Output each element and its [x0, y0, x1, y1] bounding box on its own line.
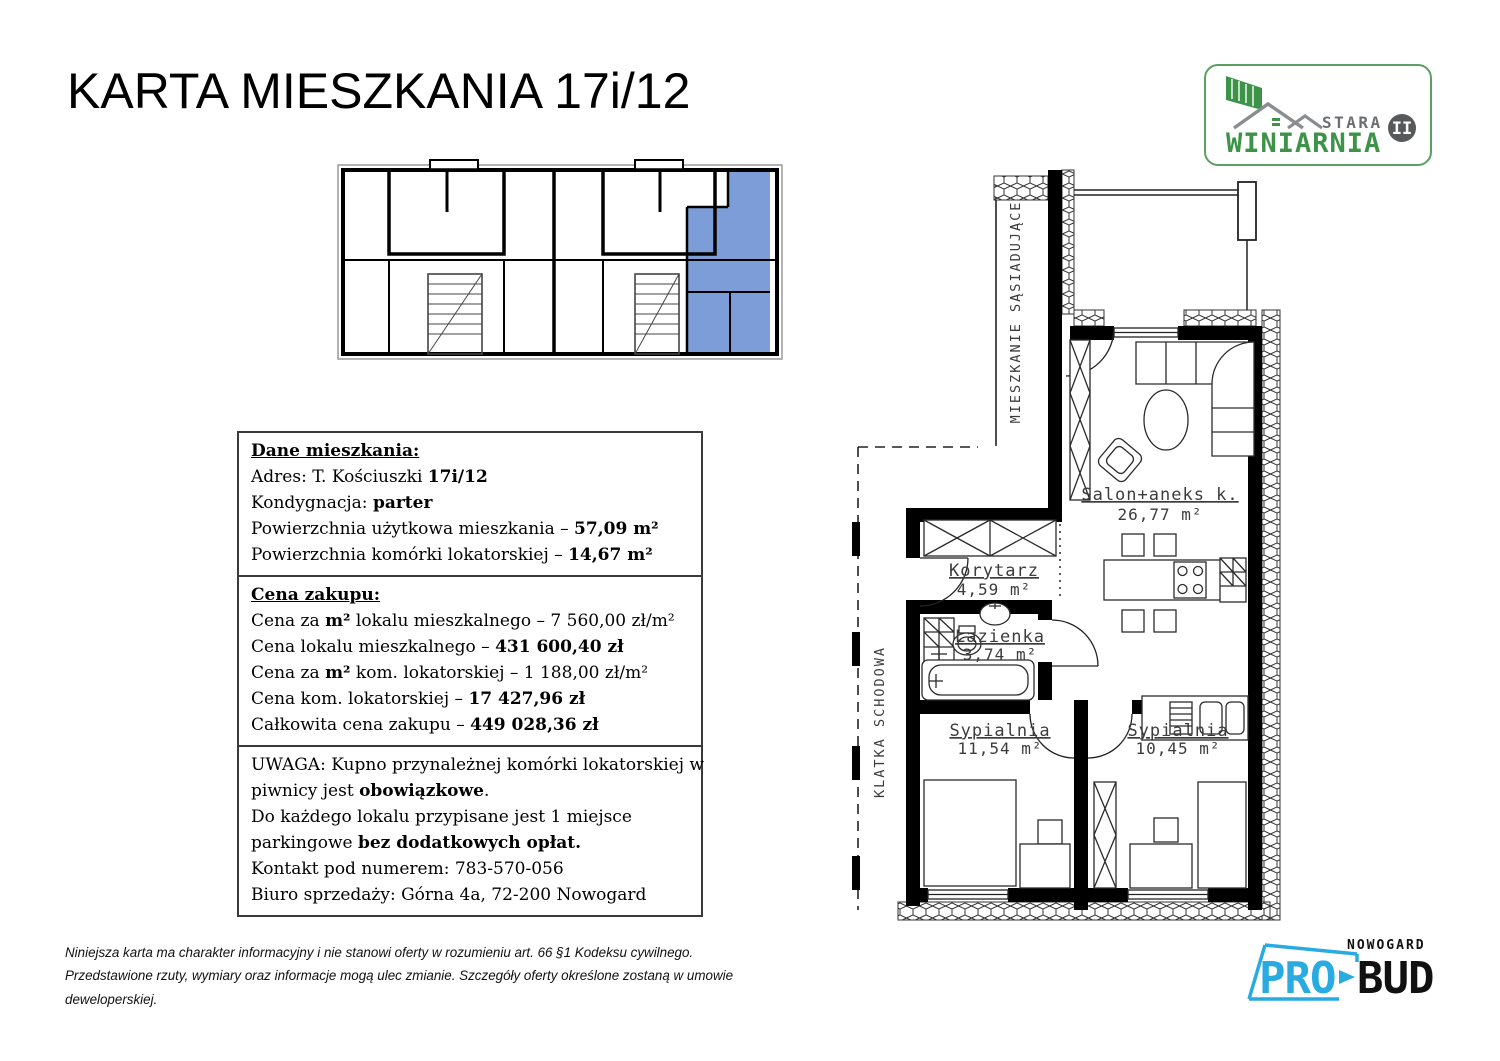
box-line: Cena za m² lokalu mieszkalnego – 7 560,0… [251, 608, 689, 634]
kitchen-chair [1154, 534, 1176, 556]
box-line: Adres: T. Kościuszki 17i/12 [251, 464, 689, 490]
text-segment: Adres: T. Kościuszki [251, 467, 428, 487]
kitchen-counter [1104, 560, 1228, 600]
house-icon [1226, 76, 1322, 128]
text-segment: 17i/12 [428, 467, 488, 487]
box-line: Do każdego lokalu przypisane jest 1 miej… [251, 804, 689, 830]
winiarnia-text: WINIARNIA [1226, 128, 1381, 159]
room-area: 26,77 m² [1117, 505, 1202, 524]
box-line: piwnicy jest obowiązkowe. [251, 778, 689, 804]
stara-winiarnia-logo-graphic: STARA WINIARNIA II [1206, 66, 1430, 164]
bed [1198, 782, 1246, 888]
staircase-symbol [428, 274, 482, 354]
text-segment: Powierzchnia komórki lokatorskiej – [251, 545, 568, 565]
box-line: Cena zakupu: [251, 582, 689, 608]
text-segment: piwnicy jest [251, 781, 359, 801]
armchair [1096, 436, 1144, 484]
room-area: 11,54 m² [957, 739, 1042, 758]
box-line: parkingowe bez dodatkowych opłat. [251, 830, 689, 856]
box-line: Całkowita cena zakupu – 449 028,36 zł [251, 712, 689, 738]
text-segment: . [484, 781, 489, 801]
insulation-hatch [1062, 170, 1074, 314]
text-segment: 17 427,96 zł [468, 689, 585, 709]
text-segment: Całkowita cena zakupu – [251, 715, 470, 735]
box-line: UWAGA: Kupno przynależnej komórki lokato… [251, 752, 689, 778]
text-segment: kom. lokatorskiej – 1 188,00 zł/m² [351, 663, 649, 683]
apartment-floor-plan: Salon+aneks k. 26,77 m² Korytarz 4,59 m²… [848, 162, 1288, 947]
box-line: Cena lokalu mieszkalnego – 431 600,40 zł [251, 634, 689, 660]
box-line: Dane mieszkania: [251, 438, 689, 464]
probud-logo: PRO NOWOGARD BUD [1235, 933, 1440, 1022]
bud-text: BUD [1357, 953, 1433, 1004]
fridge [1220, 558, 1246, 602]
text-segment: parkingowe [251, 833, 358, 853]
kitchen-chair [1122, 610, 1144, 632]
box-line: Biuro sprzedaży: Górna 4a, 72-200 Nowoga… [251, 882, 689, 908]
room-name: Sypialnia [949, 721, 1050, 741]
box-dane-mieszkania: Dane mieszkania:Adres: T. Kościuszki 17i… [237, 431, 703, 577]
info-boxes: Dane mieszkania:Adres: T. Kościuszki 17i… [237, 433, 703, 917]
text-segment: 14,67 m² [568, 545, 653, 565]
room-area: 4,59 m² [957, 580, 1031, 599]
text-segment: Kondygnacja: [251, 493, 373, 513]
box-uwaga: UWAGA: Kupno przynależnej komórki lokato… [237, 745, 703, 917]
room-name: Sypialnia [1127, 721, 1228, 741]
oval-table [1144, 390, 1188, 450]
wardrobe [1094, 782, 1116, 888]
bathroom-sink [980, 603, 1010, 625]
room-area: 10,45 m² [1135, 739, 1220, 758]
staircase-symbol [635, 274, 679, 354]
terrace-pillar [1238, 182, 1256, 240]
wardrobe [1070, 340, 1090, 500]
text-segment: Cena lokalu mieszkalnego – [251, 637, 495, 657]
insulation-hatch [994, 176, 1048, 200]
terrace [1074, 182, 1256, 310]
room-area: 3,74 m² [963, 645, 1037, 664]
bathtub [922, 660, 1034, 700]
text-segment: Dane mieszkania: [251, 441, 419, 461]
salon-furniture [1070, 340, 1254, 740]
text-segment: UWAGA: Kupno przynależnej komórki lokato… [251, 755, 704, 775]
kitchen-chair [1154, 610, 1176, 632]
stara-winiarnia-logo: STARA WINIARNIA II [1204, 64, 1432, 166]
box-line: Kontakt pod numerem: 783-570-056 [251, 856, 689, 882]
text-segment: Cena kom. lokatorskiej – [251, 689, 468, 709]
room-name: Salon+aneks k. [1081, 485, 1238, 505]
text-segment: m² [325, 611, 350, 631]
text-segment: Cena zakupu: [251, 585, 380, 605]
hall-wardrobe [924, 520, 1056, 556]
pro-text: PRO [1259, 953, 1335, 1004]
text-segment: m² [325, 663, 350, 683]
neighbor-apartment-label: MIESZKANIE SĄSIADUJĄCE [1008, 201, 1024, 424]
text-segment: 57,09 m² [574, 519, 659, 539]
text-segment: Kontakt pod numerem: 783-570-056 [251, 859, 564, 879]
washing-machine [924, 618, 954, 662]
text-segment: parter [373, 493, 432, 513]
nowogard-text: NOWOGARD [1347, 938, 1426, 953]
text-segment: Biuro sprzedaży: Górna 4a, 72-200 Nowoga… [251, 885, 646, 905]
text-segment: Cena za [251, 663, 325, 683]
text-segment: obowiązkowe [359, 781, 484, 801]
text-segment: 431 600,40 zł [495, 637, 624, 657]
bed [924, 780, 1016, 886]
room-name: Łazienka [954, 627, 1045, 647]
box-cena-zakupu: Cena zakupu:Cena za m² lokalu mieszkalne… [237, 575, 703, 747]
desk [1130, 844, 1192, 888]
kitchen-chair [1122, 534, 1144, 556]
disclaimer-text: Niniejsza karta ma charakter informacyjn… [65, 941, 773, 1011]
box-line: Kondygnacja: parter [251, 490, 689, 516]
insulation-hatch [1184, 310, 1256, 326]
text-segment: Powierzchnia użytkowa mieszkania – [251, 519, 574, 539]
chair [1038, 820, 1062, 844]
box-line: Powierzchnia komórki lokatorskiej – 14,6… [251, 542, 689, 568]
box-line: Cena za m² kom. lokatorskiej – 1 188,00 … [251, 660, 689, 686]
text-segment: bez dodatkowych opłat. [358, 833, 581, 853]
text-segment: 449 028,36 zł [470, 715, 599, 735]
stove [1174, 562, 1206, 598]
box-line: Cena kom. lokatorskiej – 17 427,96 zł [251, 686, 689, 712]
insulation-hatch [1262, 310, 1280, 920]
room-name: Korytarz [949, 561, 1039, 581]
box-line: Powierzchnia użytkowa mieszkania – 57,09… [251, 516, 689, 542]
text-segment: lokalu mieszkalnego – 7 560,00 zł/m² [351, 611, 675, 631]
numeral-text: II [1392, 119, 1412, 139]
text-segment: Cena za [251, 611, 325, 631]
page-title: KARTA MIESZKANIA 17i/12 [67, 62, 690, 120]
staircase-label: KLATKA SCHODOWA [872, 646, 888, 798]
probud-arrow [1339, 970, 1355, 984]
text-segment: Do każdego lokalu przypisane jest 1 miej… [251, 807, 632, 827]
chair [1154, 818, 1178, 842]
building-overview-plan [335, 152, 785, 372]
insulation-hatch [1074, 310, 1104, 326]
desk [1020, 844, 1070, 888]
apartment-card-page: KARTA MIESZKANIA 17i/12 STARA WINIARNIA … [0, 0, 1500, 1061]
